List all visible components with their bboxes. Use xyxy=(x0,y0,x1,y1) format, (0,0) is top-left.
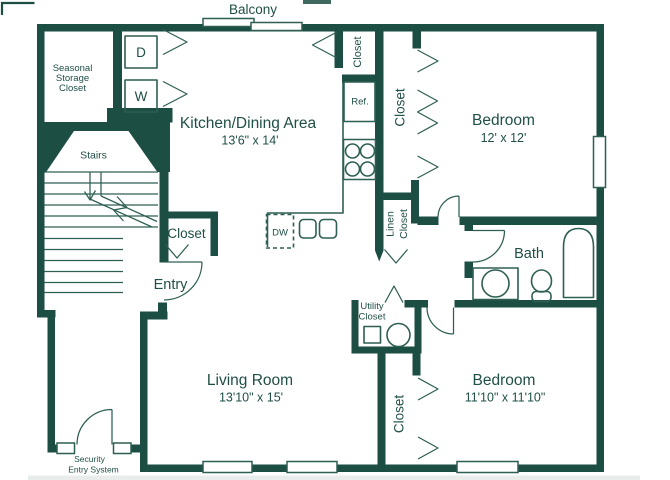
living-room-label: Living Room xyxy=(207,372,293,389)
floor-plan-drawing: Balcony Seasonal Storage Closet D W Kitc… xyxy=(0,0,670,480)
bathtub xyxy=(564,229,594,298)
bedroom1-door xyxy=(438,196,459,217)
utility-closet-label-1: Utility xyxy=(360,301,383,312)
balcony-label: Balcony xyxy=(229,2,277,17)
bedroom2-closet-door-chevron-1 xyxy=(418,378,438,400)
bath-fixtures xyxy=(364,229,594,347)
entry-sidelight-2 xyxy=(114,443,132,454)
stair-rail-diagonal xyxy=(90,196,157,227)
security-system-label-2: Entry System xyxy=(68,465,119,475)
bedroom2-door xyxy=(427,308,454,335)
seasonal-storage-label-3: Closet xyxy=(59,83,86,94)
utility-closet-label-2: Closet xyxy=(359,312,386,323)
pantry-closet-door-chevron xyxy=(313,32,338,58)
bedroom2-closet-label: Closet xyxy=(392,395,407,434)
bedroom1-window xyxy=(594,137,606,188)
entry-label: Entry xyxy=(154,277,189,293)
dishwasher-label: DW xyxy=(272,228,288,239)
stairs-label: Stairs xyxy=(80,150,107,162)
kitchen-dining-dims: 13'6" x 14' xyxy=(221,134,278,148)
bedroom1-closet-door-chevron-3 xyxy=(418,156,439,178)
labels: Balcony Seasonal Storage Closet D W Kitc… xyxy=(53,2,546,475)
dryer-label: D xyxy=(136,45,146,60)
entry-closet-label: Closet xyxy=(167,226,206,241)
bath-label: Bath xyxy=(514,246,544,262)
bedroom2-label: Bedroom xyxy=(473,372,536,389)
pantry-closet-label: Closet xyxy=(352,36,364,67)
security-entry-door xyxy=(77,410,112,445)
entry-sidelight-1 xyxy=(57,443,75,454)
kitchen-dining-label: Kitchen/Dining Area xyxy=(180,115,317,132)
linen-closet-label-1: Linen xyxy=(385,211,397,237)
kitchen-counter xyxy=(268,83,344,248)
utility-equipment xyxy=(364,324,410,347)
security-system-label-1: Security xyxy=(74,454,105,464)
bedroom1-dims: 12' x 12' xyxy=(481,131,527,145)
living-room-window-2 xyxy=(287,462,337,473)
floor-plan-page: Balcony Seasonal Storage Closet D W Kitc… xyxy=(0,0,670,480)
bedroom1-closet-label: Closet xyxy=(393,88,408,127)
entry-closet-door-chevron xyxy=(166,245,189,259)
bedroom1-closet-door-chevron-1 xyxy=(418,50,439,72)
vanity-sink xyxy=(473,268,518,300)
crop-artifacts xyxy=(2,0,640,480)
bath-door xyxy=(473,231,505,263)
bedroom1-closet-door-chevron-2 xyxy=(418,90,438,134)
dryer-closet-door-chevron xyxy=(163,30,187,55)
bedroom2-window xyxy=(457,462,518,473)
stair-break-line xyxy=(114,197,128,222)
bedroom2-dims: 11'10" x 11'10" xyxy=(465,391,546,405)
bedroom2-closet-door-chevron-2 xyxy=(418,437,438,459)
toilet xyxy=(532,270,552,302)
washer-closet-door-chevron xyxy=(163,82,187,107)
utility-closet-door-chevron xyxy=(385,286,403,303)
living-room-window-1 xyxy=(203,462,252,473)
bedroom1-label: Bedroom xyxy=(472,112,535,129)
kitchen-sink xyxy=(300,220,337,239)
refrigerator-label: Ref. xyxy=(351,97,368,108)
stair-rail xyxy=(90,172,101,199)
linen-closet-door-chevron xyxy=(385,250,408,264)
living-room-dims: 13'10" x 15' xyxy=(219,391,283,405)
linen-closet-label-2: Closet xyxy=(398,209,410,239)
washer-label: W xyxy=(135,89,148,104)
stove xyxy=(344,140,376,180)
stairs xyxy=(45,172,159,293)
